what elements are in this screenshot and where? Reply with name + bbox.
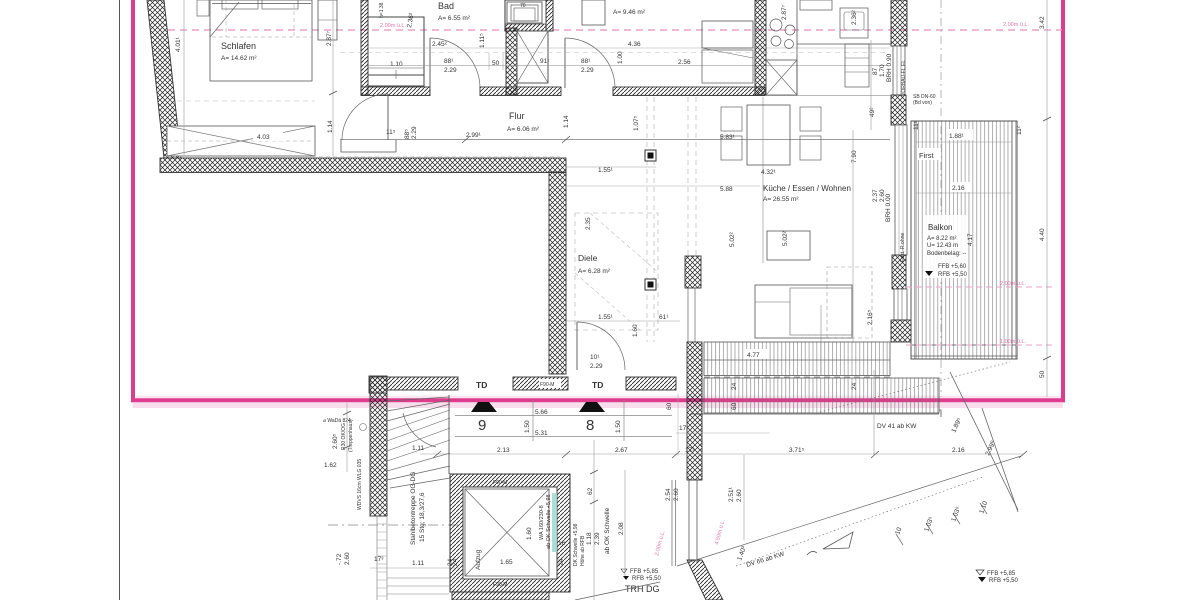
svg-text:Flur: Flur — [509, 111, 525, 121]
svg-text:2.00m ü.L.: 2.00m ü.L. — [380, 23, 406, 29]
svg-text:10¹: 10¹ — [590, 354, 600, 361]
svg-text:11²: 11² — [1016, 125, 1023, 135]
svg-text:91¹: 91¹ — [540, 58, 550, 65]
svg-text:(Bd von): (Bd von) — [913, 100, 932, 106]
svg-text:5.31: 5.31 — [535, 430, 548, 437]
svg-text:2.16: 2.16 — [952, 447, 965, 454]
svg-text:11¹: 11¹ — [913, 120, 920, 130]
svg-text:88⁵: 88⁵ — [404, 129, 411, 139]
svg-text:F90-M: F90-M — [493, 480, 507, 486]
svg-text:FFB +5,60: FFB +5,60 — [938, 264, 967, 270]
svg-text:RFB +5,50: RFB +5,50 — [989, 578, 1019, 584]
svg-text:2.29: 2.29 — [590, 363, 603, 370]
svg-text:TD: TD — [592, 380, 603, 390]
svg-text:3.71⁵: 3.71⁵ — [789, 447, 805, 454]
svg-text:1.50: 1.50 — [615, 420, 622, 433]
svg-text:2.36²: 2.36² — [851, 9, 858, 25]
svg-text:15 Stg; 18,3/27,6: 15 Stg; 18,3/27,6 — [419, 492, 426, 542]
svg-text:61¹: 61¹ — [659, 314, 669, 321]
svg-text:1.60: 1.60 — [526, 527, 533, 540]
svg-text:1.55¹: 1.55¹ — [598, 167, 614, 174]
svg-text:2.87⁷: 2.87⁷ — [781, 4, 788, 20]
svg-text:4.03: 4.03 — [257, 134, 270, 141]
svg-text:1.65: 1.65 — [500, 559, 513, 566]
svg-text:-.72: -.72 — [336, 553, 343, 565]
svg-text:4.77: 4.77 — [747, 352, 760, 359]
svg-text:R30 OK/OG: R30 OK/OG — [341, 423, 347, 450]
svg-text:2.16: 2.16 — [952, 185, 965, 192]
svg-text:2.29: 2.29 — [581, 67, 594, 74]
svg-text:8: 8 — [586, 417, 594, 434]
svg-text:24: 24 — [731, 382, 738, 390]
svg-text:50: 50 — [492, 60, 500, 67]
svg-text:Bodenbelag: --: Bodenbelag: -- — [927, 251, 966, 257]
svg-text:2.56: 2.56 — [678, 59, 691, 66]
svg-text:Stahlbetontreppe OG-DG: Stahlbetontreppe OG-DG — [410, 472, 417, 545]
svg-text:3.42: 3.42 — [1039, 16, 1046, 29]
svg-text:WA 160/230-8: WA 160/230-8 — [539, 505, 545, 540]
svg-text:1.10: 1.10 — [390, 61, 403, 68]
svg-text:First: First — [919, 151, 934, 160]
svg-text:88¹: 88¹ — [581, 58, 591, 65]
svg-text:VORBAU-FL.EL: VORBAU-FL.EL — [901, 60, 907, 96]
svg-text:17³: 17³ — [685, 447, 695, 454]
svg-text:17³: 17³ — [374, 556, 384, 563]
svg-text:(Treppenhaus): (Treppenhaus) — [348, 419, 354, 452]
svg-text:60: 60 — [731, 402, 738, 410]
svg-text:RFB +5,50: RFB +5,50 — [938, 272, 968, 278]
svg-text:88¹: 88¹ — [444, 58, 454, 65]
svg-text:5.02²: 5.02² — [782, 230, 789, 246]
svg-text:WDVS 16cm WLG 035: WDVS 16cm WLG 035 — [357, 459, 363, 510]
svg-text:2.16⁵: 2.16⁵ — [867, 309, 874, 325]
svg-text:2.54: 2.54 — [665, 488, 672, 501]
svg-text:4.32¹: 4.32¹ — [761, 169, 777, 176]
svg-text:FFB +5,85: FFB +5,85 — [987, 571, 1016, 577]
svg-text:1.62: 1.62 — [324, 462, 337, 469]
svg-text:1.11⁵: 1.11⁵ — [479, 33, 486, 48]
svg-text:Balkon: Balkon — [928, 223, 952, 232]
svg-text:DV 41 ab KW: DV 41 ab KW — [877, 423, 917, 430]
svg-text:4.40: 4.40 — [1039, 228, 1046, 241]
svg-text:F90-M: F90-M — [540, 382, 554, 388]
svg-text:4.17: 4.17 — [967, 233, 974, 246]
svg-text:BRH 0.90: BRH 0.90 — [886, 53, 893, 82]
svg-text:49²: 49² — [869, 107, 876, 117]
svg-text:RFB +5,50: RFB +5,50 — [632, 576, 662, 582]
svg-text:1.00: 1.00 — [617, 51, 624, 64]
svg-text:62: 62 — [587, 487, 594, 495]
svg-text:1.55¹: 1.55¹ — [598, 314, 614, 321]
svg-text:1.70: 1.70 — [879, 64, 886, 77]
svg-text:2.60: 2.60 — [673, 488, 680, 501]
svg-text:A= 26.55 m²: A= 26.55 m² — [763, 196, 799, 203]
svg-text:DK Schwelle +5,98: DK Schwelle +5,98 — [573, 523, 579, 566]
svg-text:Küche / Essen / Wohnen: Küche / Essen / Wohnen — [763, 184, 851, 193]
svg-text:5.88: 5.88 — [720, 186, 733, 193]
svg-text:A= 6.28 m²: A= 6.28 m² — [578, 268, 611, 275]
svg-text:24: 24 — [851, 382, 858, 390]
svg-text:2.39: 2.39 — [594, 532, 601, 545]
svg-text:2.87⁷: 2.87⁷ — [326, 30, 333, 46]
svg-text:7.90: 7.90 — [851, 150, 858, 163]
svg-text:17¹: 17¹ — [679, 425, 689, 432]
svg-text:2.37: 2.37 — [872, 189, 879, 202]
svg-text:2.35: 2.35 — [585, 217, 592, 230]
svg-text:ab OK Schwelle: ab OK Schwelle — [604, 507, 611, 554]
svg-text:Höhe ab RFB: Höhe ab RFB — [580, 535, 586, 566]
svg-text:2.00m ü.L.: 2.00m ü.L. — [1000, 281, 1026, 287]
svg-text:F90-M: F90-M — [493, 582, 507, 588]
svg-text:1.11: 1.11 — [412, 445, 425, 452]
svg-text:70: 70 — [520, 3, 526, 9]
svg-text:1.88¹: 1.88¹ — [949, 133, 965, 140]
svg-text:2.51¹: 2.51¹ — [728, 486, 735, 502]
svg-text:Aufzug: Aufzug — [475, 549, 482, 570]
svg-text:A= 8.22 m²: A= 8.22 m² — [927, 236, 957, 242]
svg-text:A= 14.62 m²: A= 14.62 m² — [221, 55, 257, 62]
svg-text:2.45²: 2.45² — [432, 41, 448, 48]
svg-text:2.29: 2.29 — [444, 67, 457, 74]
svg-text:A= 6.06 m²: A= 6.06 m² — [507, 126, 540, 133]
svg-text:2.60⁵: 2.60⁵ — [332, 433, 339, 449]
svg-text:ab OK Schwelle +5,98: ab OK Schwelle +5,98 — [546, 494, 552, 549]
svg-text:2.29: 2.29 — [411, 126, 418, 139]
svg-text:24: 24 — [558, 558, 565, 566]
svg-text:11⁵: 11⁵ — [386, 129, 396, 136]
svg-text:2.60: 2.60 — [344, 552, 351, 565]
svg-text:1.07⁵: 1.07⁵ — [633, 115, 640, 131]
svg-text:5.66: 5.66 — [535, 409, 548, 416]
svg-text:5.83¹: 5.83¹ — [720, 134, 736, 141]
svg-text:1.14: 1.14 — [563, 115, 570, 128]
svg-text:A= 9.46 m²: A= 9.46 m² — [613, 9, 646, 16]
svg-text:BRH 0.00: BRH 0.00 — [885, 193, 892, 222]
svg-text:2.08: 2.08 — [618, 522, 625, 535]
svg-text:60: 60 — [666, 402, 673, 410]
svg-text:4.01¹: 4.01¹ — [175, 36, 182, 52]
svg-text:FFB +5,85: FFB +5,85 — [630, 569, 659, 575]
svg-text:2.67: 2.67 — [615, 447, 628, 454]
svg-text:1.18: 1.18 — [586, 532, 593, 545]
svg-text:Bad: Bad — [438, 1, 454, 11]
svg-text:24: 24 — [452, 558, 459, 566]
svg-text:1.00m ü.L.: 1.00m ü.L. — [1000, 339, 1026, 345]
svg-text:5.02²: 5.02² — [729, 231, 736, 247]
svg-text:2.13: 2.13 — [497, 447, 510, 454]
svg-text:1.11: 1.11 — [412, 560, 425, 567]
svg-text:9: 9 — [478, 417, 486, 434]
svg-text:4.36: 4.36 — [628, 41, 641, 48]
svg-text:7²: 7² — [505, 54, 512, 61]
svg-text:50: 50 — [1039, 370, 1046, 378]
svg-text:U= 12.43 m: U= 12.43 m — [927, 243, 958, 249]
svg-text:A= 6.55 m²: A= 6.55 m² — [438, 15, 471, 22]
svg-text:2.60: 2.60 — [736, 489, 743, 502]
svg-text:h=1.38: h=1.38 — [379, 2, 385, 18]
svg-text:Diele: Diele — [578, 253, 598, 263]
svg-text:TD: TD — [476, 380, 487, 390]
svg-text:2.00m ü.L.: 2.00m ü.L. — [1003, 22, 1029, 28]
svg-text:16: 16 — [558, 540, 566, 547]
svg-text:1.50: 1.50 — [524, 420, 531, 433]
svg-text:Schlafen: Schlafen — [221, 41, 256, 51]
svg-text:87: 87 — [872, 67, 879, 75]
svg-text:1.14: 1.14 — [327, 120, 334, 133]
